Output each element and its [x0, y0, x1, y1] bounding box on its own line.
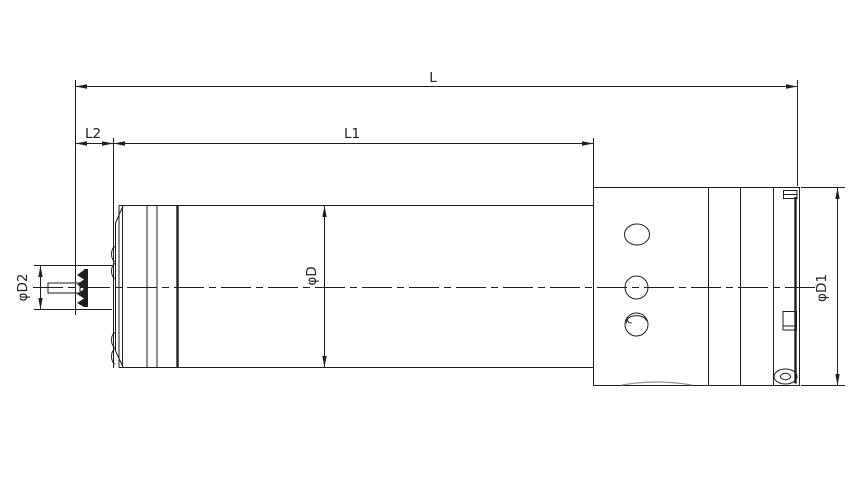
drawing-canvas: L L2 L1 φD φD2 φD1	[0, 0, 865, 500]
arrow-down-icon	[38, 298, 42, 310]
dimension-overall-length: L	[76, 70, 798, 315]
cable-gland-inner	[781, 373, 791, 379]
dimension-nose-length: L2	[76, 126, 114, 146]
arrow-down-icon	[835, 374, 839, 386]
thread-collar	[84, 269, 88, 307]
dimension-label-L1: L1	[344, 126, 360, 142]
ball-plug-arc-small	[628, 320, 632, 323]
arrow-left-icon	[76, 84, 88, 88]
housing-hole-bottom	[625, 313, 648, 336]
dimension-label-L2: L2	[85, 126, 101, 142]
arrow-left-icon	[114, 141, 126, 145]
dimension-body-diameter: φD	[304, 206, 327, 368]
arrow-right-icon	[582, 141, 594, 145]
dimension-housing-diameter: φD1	[801, 188, 845, 386]
dimension-label-L: L	[429, 70, 437, 86]
spindle-technical-drawing: L L2 L1 φD φD2 φD1	[0, 0, 865, 500]
spindle-body	[119, 206, 594, 368]
arrow-right-icon	[786, 84, 798, 88]
housing-bottom-contour	[622, 382, 692, 385]
arrow-up-icon	[835, 188, 839, 200]
dimension-body-length: L1	[114, 126, 594, 368]
arrow-up-icon	[322, 206, 326, 218]
housing-hole-top	[625, 224, 650, 245]
housing-outline	[594, 188, 800, 386]
arrow-down-icon	[322, 356, 326, 368]
dimension-label-phiD1: φD1	[814, 274, 830, 302]
dimension-label-phiD2: φD2	[15, 274, 31, 302]
motor-housing	[594, 188, 800, 386]
dimension-label-phiD: φD	[304, 266, 320, 285]
cable-gland-outer	[774, 369, 797, 384]
arrow-up-icon	[38, 266, 42, 278]
arrow-right-icon	[102, 141, 114, 145]
